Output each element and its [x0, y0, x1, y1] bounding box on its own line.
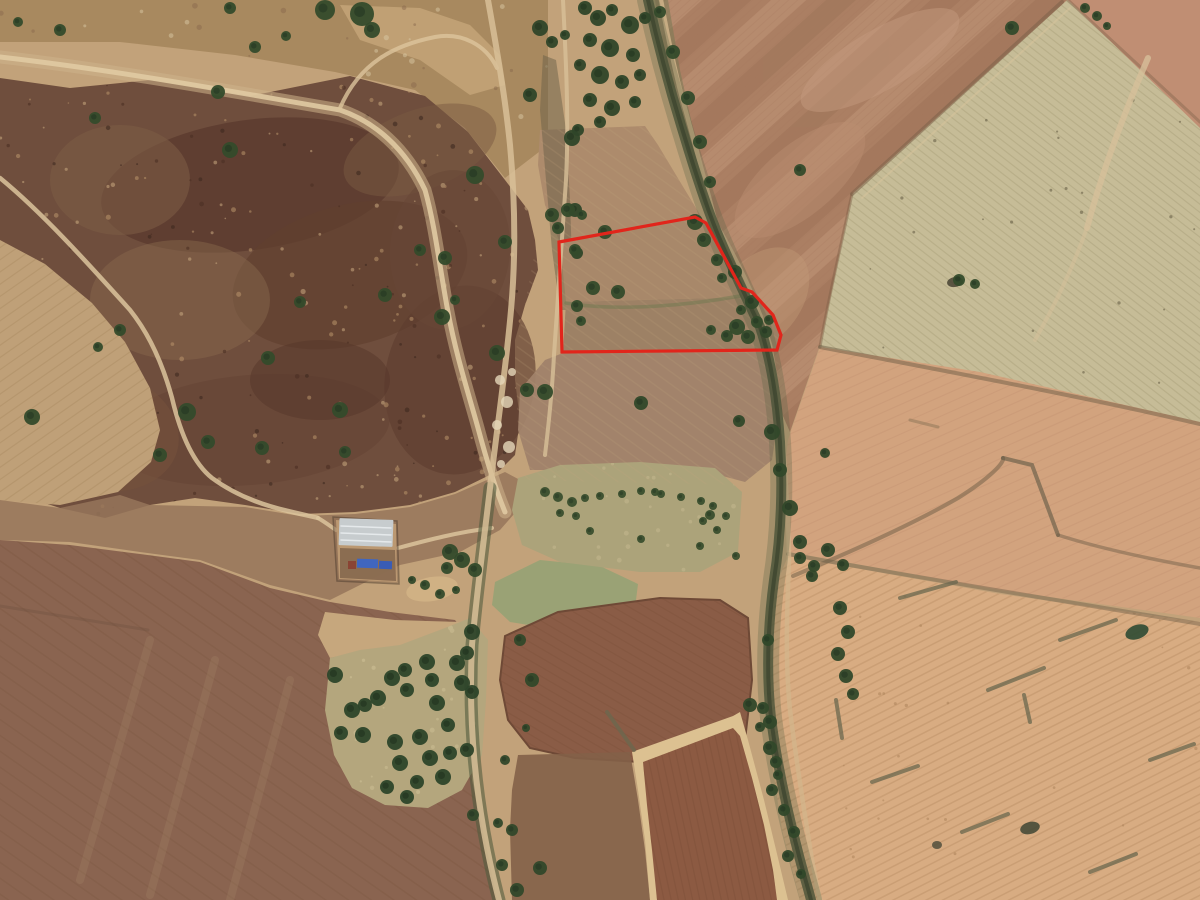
- rust-shed: [348, 561, 356, 569]
- satellite-photo: [0, 0, 1200, 900]
- blue-trailer-small: [379, 561, 392, 569]
- field-strip-west: [510, 752, 650, 900]
- satellite-image-canvas: [0, 0, 1200, 900]
- blue-trailer-large: [357, 559, 378, 569]
